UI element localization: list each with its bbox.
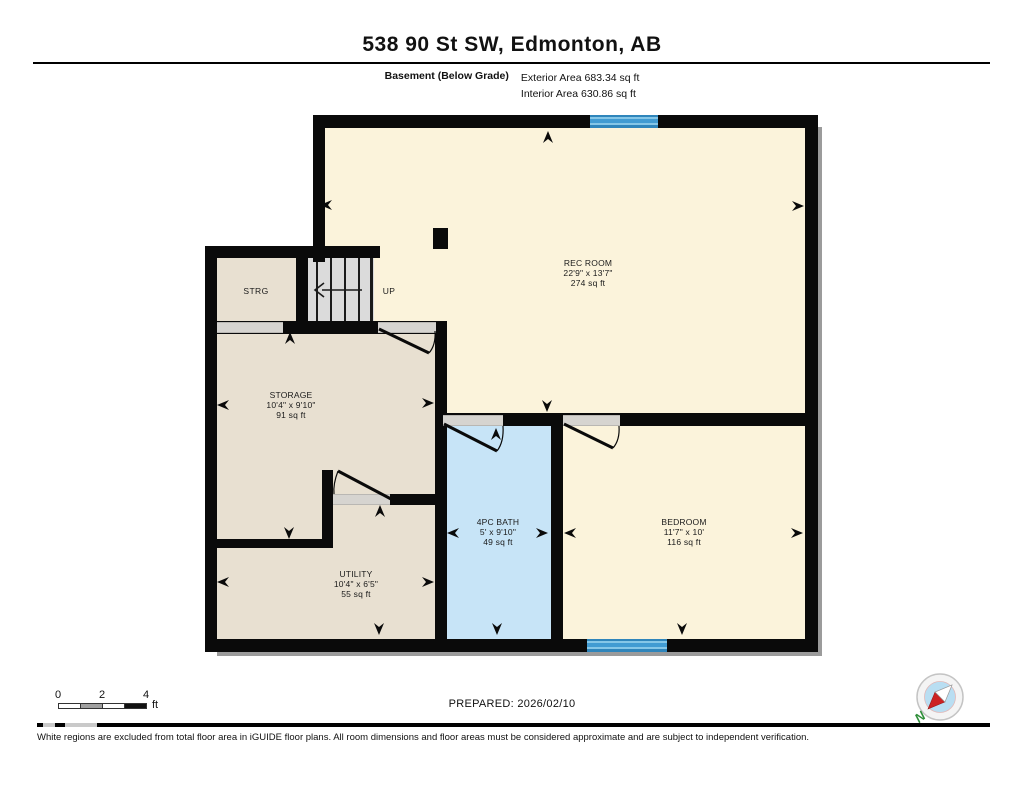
stair-tread xyxy=(358,258,360,321)
wall-south xyxy=(205,639,818,652)
wall-utility-stub xyxy=(322,470,333,548)
support-post xyxy=(433,228,448,249)
header-rule xyxy=(33,62,990,64)
wall-east xyxy=(805,115,818,652)
plan-shadow-right xyxy=(818,127,822,656)
room-name: BEDROOM xyxy=(604,517,764,527)
strg-door-opening xyxy=(217,322,283,333)
window-south xyxy=(587,639,667,652)
window-north xyxy=(590,115,658,128)
page-title: 538 90 St SW, Edmonton, AB xyxy=(0,33,1024,57)
wall-west xyxy=(205,246,217,652)
room-area: 55 sq ft xyxy=(286,589,426,599)
room-dims: 10'4" x 6'5" xyxy=(286,579,426,589)
footer-rule-dash xyxy=(43,723,55,727)
wall-strg-stairs-north xyxy=(205,246,380,258)
exterior-area: Exterior Area 683.34 sq ft xyxy=(521,70,639,86)
room-dims: 10'4" x 9'10" xyxy=(221,400,361,410)
room-label-bedroom: BEDROOM 11'7" x 10' 116 sq ft xyxy=(604,517,764,547)
plan-shadow-bottom xyxy=(217,652,821,656)
utility-door-opening xyxy=(333,494,390,505)
floor-plan-page: 538 90 St SW, Edmonton, AB Basement (Bel… xyxy=(0,0,1024,791)
footer-rule-dash xyxy=(65,723,97,727)
room-name: REC ROOM xyxy=(508,258,668,268)
storage-door-opening xyxy=(378,322,436,333)
compass-outer-ring xyxy=(917,674,963,720)
stairs-up-label: UP xyxy=(369,286,409,296)
room-dims: 22'9" x 13'7" xyxy=(508,268,668,278)
footer-disclaimer: White regions are excluded from total fl… xyxy=(37,732,997,743)
room-label-bath: 4PC BATH 5' x 9'10" 49 sq ft xyxy=(437,517,559,547)
stair-tread xyxy=(316,258,318,321)
room-label-utility: UTILITY 10'4" x 6'5" 55 sq ft xyxy=(286,569,426,599)
prepared-date: PREPARED: 2026/02/10 xyxy=(0,698,1024,710)
wall-recroom-west xyxy=(313,115,325,262)
room-label-strg: STRG xyxy=(216,286,296,296)
room-name: UTILITY xyxy=(286,569,426,579)
interior-area: Interior Area 630.86 sq ft xyxy=(521,86,639,102)
room-dims: 5' x 9'10" xyxy=(437,527,559,537)
room-label-storage: STORAGE 10'4" x 9'10" 91 sq ft xyxy=(221,390,361,420)
floor-label: Basement (Below Grade) xyxy=(385,70,509,102)
wall-utility-north xyxy=(390,494,438,505)
room-name: STORAGE xyxy=(221,390,361,400)
bedroom-door-opening xyxy=(563,415,620,426)
wall-strg-stairs-divider xyxy=(296,256,308,330)
room-label-recroom: REC ROOM 22'9" x 13'7" 274 sq ft xyxy=(508,258,668,288)
wall-north xyxy=(313,115,818,128)
stair-tread xyxy=(344,258,346,321)
room-area: 274 sq ft xyxy=(508,278,668,288)
floor-header: Basement (Below Grade) Exterior Area 683… xyxy=(0,70,1024,102)
bath-door-opening xyxy=(443,415,503,426)
room-area: 91 sq ft xyxy=(221,410,361,420)
wall-storage-utility-divider xyxy=(211,539,329,548)
stairs-floor xyxy=(302,252,374,328)
room-area: 116 sq ft xyxy=(604,537,764,547)
stair-tread xyxy=(330,258,332,321)
room-name: 4PC BATH xyxy=(437,517,559,527)
room-area: 49 sq ft xyxy=(437,537,559,547)
footer-rule xyxy=(37,723,990,727)
wall-storage-east xyxy=(435,321,447,652)
room-dims: 11'7" x 10' xyxy=(604,527,764,537)
floor-areas: Exterior Area 683.34 sq ft Interior Area… xyxy=(521,70,639,102)
